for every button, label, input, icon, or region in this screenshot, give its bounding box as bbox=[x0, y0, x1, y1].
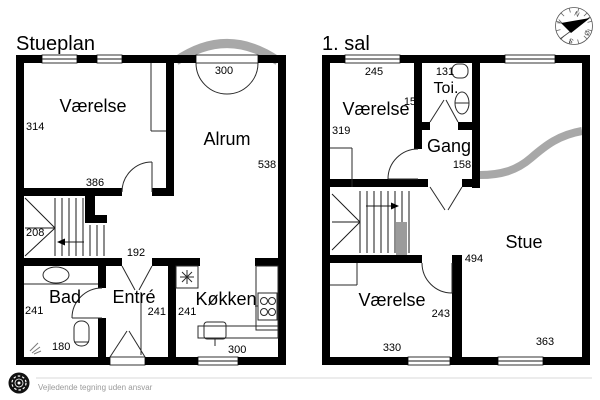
gang-door bbox=[430, 187, 445, 210]
room-label-vaerelse-bottom: Værelse bbox=[358, 290, 425, 310]
floorplan-drawing: Stueplan 1. sal bbox=[0, 0, 600, 400]
vaerelse-door bbox=[122, 162, 152, 192]
kitchen-sink bbox=[204, 322, 226, 339]
compass-rose: N Ø S V bbox=[556, 8, 593, 45]
dim-vaerelse-330: 330 bbox=[383, 342, 401, 354]
dim-vaerelse-245: 245 bbox=[365, 66, 383, 78]
footer: Vejledende tegning uden ansvar bbox=[9, 373, 593, 394]
entre-door-opening bbox=[110, 357, 145, 365]
toi-sink bbox=[452, 64, 468, 78]
plan-1sal: Værelse 245 319 Toi. 131 150 Gang 158 St… bbox=[322, 55, 590, 365]
dim-toi-150: 150 bbox=[404, 96, 422, 108]
shower-icon bbox=[30, 343, 41, 354]
dim-koekken-241: 241 bbox=[178, 306, 196, 318]
room-label-vaerelse-top: Værelse bbox=[342, 99, 409, 119]
footer-logo-icon bbox=[9, 373, 30, 394]
room-label-gang: Gang bbox=[427, 136, 471, 156]
star-symbol bbox=[180, 270, 194, 284]
stove bbox=[258, 293, 277, 320]
dim-entrance-300: 300 bbox=[215, 65, 233, 77]
stairs-direction-arrow bbox=[57, 239, 65, 246]
footer-disclaimer: Vejledende tegning uden ansvar bbox=[38, 383, 153, 392]
floor-title-stueplan: Stueplan bbox=[16, 33, 95, 55]
dim-stue-494: 494 bbox=[465, 253, 483, 265]
room-label-alrum: Alrum bbox=[203, 129, 250, 149]
dim-gang-158: 158 bbox=[453, 159, 471, 171]
dim-alrum-538: 538 bbox=[258, 159, 276, 171]
dim-koekken-300: 300 bbox=[228, 344, 246, 356]
dim-toi-131: 131 bbox=[436, 66, 454, 78]
dim-vaerelse-314: 314 bbox=[26, 121, 44, 133]
room-label-vaerelse: Værelse bbox=[59, 96, 126, 116]
dim-entre-241: 241 bbox=[148, 306, 166, 318]
vaerelse-bottom-door bbox=[422, 263, 452, 293]
room-label-toi: Toi. bbox=[434, 80, 459, 97]
bad-sink bbox=[43, 267, 69, 283]
dim-vaerelse-386: 386 bbox=[86, 177, 104, 189]
dim-vaerelse-319: 319 bbox=[332, 125, 350, 137]
dim-bad-241: 241 bbox=[25, 305, 43, 317]
dim-entre-192: 192 bbox=[127, 247, 145, 259]
vaerelse-top-door bbox=[388, 149, 418, 179]
room-label-stue: Stue bbox=[505, 232, 542, 252]
dim-vaerelse-243: 243 bbox=[432, 308, 450, 320]
stairs-gray-landing bbox=[396, 222, 407, 255]
dim-stairs-208: 208 bbox=[26, 227, 44, 239]
room-label-entre: Entré bbox=[112, 287, 155, 307]
entrance-opening bbox=[196, 55, 258, 63]
toi-door bbox=[430, 100, 444, 122]
front-door bbox=[110, 331, 127, 357]
dim-bad-180: 180 bbox=[52, 341, 70, 353]
floorplan-page: Stueplan 1. sal bbox=[0, 0, 600, 400]
floor-title-1sal: 1. sal bbox=[322, 33, 370, 55]
room-label-koekken: Køkken bbox=[195, 289, 256, 309]
kitchen-counter-bottom bbox=[198, 326, 278, 338]
dim-stue-363: 363 bbox=[536, 336, 554, 348]
plan-stueplan: Værelse 314 386 Alrum 538 300 208 Bad 24… bbox=[16, 44, 286, 366]
room-label-bad: Bad bbox=[49, 287, 81, 307]
stue-curved-wall bbox=[480, 131, 582, 175]
